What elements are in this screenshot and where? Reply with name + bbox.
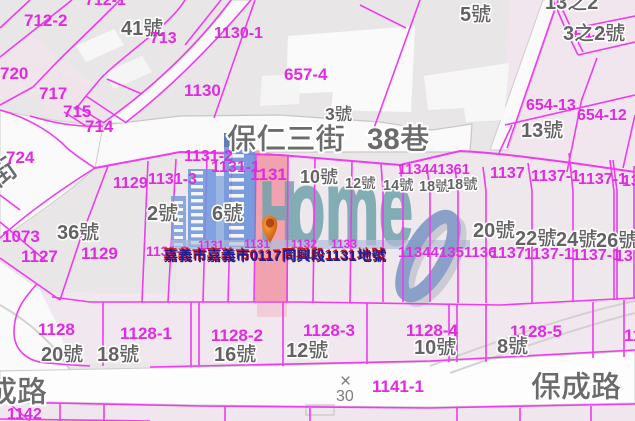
- svg-text:30: 30: [336, 388, 354, 405]
- svg-text:10: 10: [414, 337, 436, 359]
- svg-text:38: 38: [367, 123, 400, 156]
- svg-text:16: 16: [214, 344, 236, 366]
- svg-text:654-13: 654-13: [526, 97, 576, 114]
- svg-text:712-2: 712-2: [24, 11, 67, 30]
- svg-text:1131: 1131: [326, 249, 357, 265]
- svg-text:717: 717: [39, 84, 67, 103]
- svg-text:654-12: 654-12: [577, 107, 627, 124]
- svg-text:3: 3: [563, 23, 574, 45]
- svg-text:714: 714: [85, 117, 114, 136]
- svg-text:1137-1: 1137-1: [578, 171, 627, 188]
- svg-text:13: 13: [622, 173, 635, 190]
- svg-text:1128-3: 1128-3: [303, 321, 355, 340]
- svg-text:1141-1: 1141-1: [372, 377, 424, 396]
- svg-text:1137: 1137: [490, 245, 525, 262]
- svg-text:18: 18: [419, 179, 435, 195]
- svg-text:1128-1: 1128-1: [120, 324, 172, 343]
- svg-text:113441351136: 113441351136: [398, 244, 496, 261]
- svg-text:13: 13: [521, 120, 543, 142]
- svg-text:13: 13: [615, 248, 633, 265]
- svg-text:1131-3: 1131-3: [148, 171, 197, 188]
- svg-text:2: 2: [594, 23, 605, 45]
- svg-text:8: 8: [497, 336, 508, 358]
- svg-text:3: 3: [325, 104, 335, 124]
- svg-text:720: 720: [0, 64, 28, 83]
- svg-text:1142: 1142: [7, 406, 42, 421]
- svg-text:12: 12: [345, 176, 361, 192]
- svg-text:1130: 1130: [184, 81, 221, 100]
- svg-text:0117: 0117: [250, 249, 281, 265]
- svg-text:2: 2: [587, 0, 598, 14]
- svg-text:36: 36: [57, 222, 79, 244]
- svg-text:20: 20: [41, 344, 63, 366]
- svg-text:1128: 1128: [38, 320, 75, 339]
- svg-text:724: 724: [6, 148, 35, 167]
- svg-text:1137-1: 1137-1: [572, 247, 621, 264]
- svg-text:11: 11: [624, 326, 635, 345]
- svg-text:20: 20: [473, 220, 495, 242]
- svg-text:1137-1: 1137-1: [531, 168, 580, 185]
- svg-text:10: 10: [300, 167, 320, 187]
- svg-text:1137-1: 1137-1: [524, 246, 573, 263]
- svg-text:657-4: 657-4: [284, 65, 328, 84]
- svg-text:41: 41: [121, 18, 143, 40]
- svg-text:5: 5: [460, 4, 471, 26]
- svg-text:1073: 1073: [2, 227, 40, 246]
- svg-text:1137: 1137: [490, 165, 525, 182]
- svg-text:13: 13: [545, 0, 567, 14]
- svg-text:18: 18: [97, 344, 119, 366]
- svg-text:6: 6: [212, 203, 223, 225]
- svg-text:1129: 1129: [81, 244, 118, 263]
- svg-text:1129: 1129: [113, 175, 148, 192]
- svg-text:1131: 1131: [250, 165, 287, 184]
- svg-text:1130-1: 1130-1: [214, 25, 263, 42]
- svg-text:1127: 1127: [21, 247, 58, 266]
- svg-text:712-1: 712-1: [85, 0, 126, 9]
- svg-text:14: 14: [383, 178, 399, 194]
- svg-text:12: 12: [286, 340, 308, 362]
- svg-text:1128-2: 1128-2: [211, 326, 263, 345]
- svg-text:18: 18: [447, 177, 463, 193]
- svg-text:713: 713: [150, 30, 177, 47]
- svg-text:1128-5: 1128-5: [510, 322, 562, 341]
- svg-text:113441361: 113441361: [398, 162, 470, 178]
- svg-text:2: 2: [147, 203, 158, 225]
